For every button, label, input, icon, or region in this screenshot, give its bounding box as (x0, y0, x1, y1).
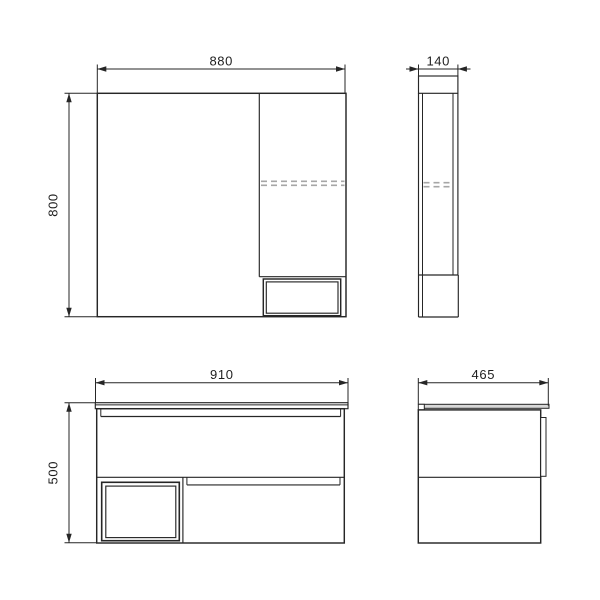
dimension-label-140: 140 (426, 54, 450, 69)
arrowhead-left (410, 66, 419, 71)
vanity-door-inner (106, 486, 176, 537)
arrowhead-down (66, 534, 71, 543)
arrowhead-right (336, 66, 345, 71)
countertop-front-lip (418, 404, 424, 410)
arrowhead-down (66, 308, 71, 317)
arrowhead-right (539, 380, 548, 385)
dimension-mirror-height: 800 (46, 93, 98, 316)
vanity-front-outline (97, 409, 345, 543)
dimension-vanity-height: 500 (46, 403, 97, 543)
dimension-vanity-depth: 465 (418, 367, 548, 406)
technical-drawing-canvas: 880 800 140 910 500 (0, 0, 600, 600)
arrowhead-left (97, 66, 106, 71)
mirror-front-outline (97, 93, 346, 316)
drawing-page: 880 800 140 910 500 (0, 0, 600, 600)
vanity-side-view (418, 404, 549, 543)
wall-mount-rail (541, 418, 546, 477)
open-shelf-box-outer (263, 279, 340, 316)
arrowhead-right (339, 380, 348, 385)
dimension-label-910: 910 (210, 367, 234, 382)
dimension-label-800: 800 (46, 193, 61, 217)
arrowhead-left (96, 380, 105, 385)
open-shelf-box-inner (266, 282, 338, 313)
mirror-side-view (419, 76, 459, 317)
vanity-countertop-front (95, 403, 348, 409)
dimension-mirror-depth: 140 (406, 54, 471, 77)
vanity-door-outer (102, 482, 180, 540)
dimension-label-880: 880 (209, 54, 233, 69)
dimension-label-465: 465 (472, 367, 496, 382)
dimension-label-500: 500 (46, 461, 61, 485)
dimension-mirror-width: 880 (97, 54, 345, 94)
mirror-front-view (97, 93, 346, 316)
arrowhead-up (66, 403, 71, 412)
mirror-side-top-cap (419, 76, 458, 93)
vanity-countertop-side (420, 404, 550, 408)
vanity-side-outline (418, 410, 540, 543)
dimension-vanity-width: 910 (96, 367, 349, 403)
arrowhead-left (418, 380, 427, 385)
arrowhead-up (66, 93, 71, 102)
vanity-front-view (95, 403, 348, 543)
arrowhead-right (458, 66, 467, 71)
